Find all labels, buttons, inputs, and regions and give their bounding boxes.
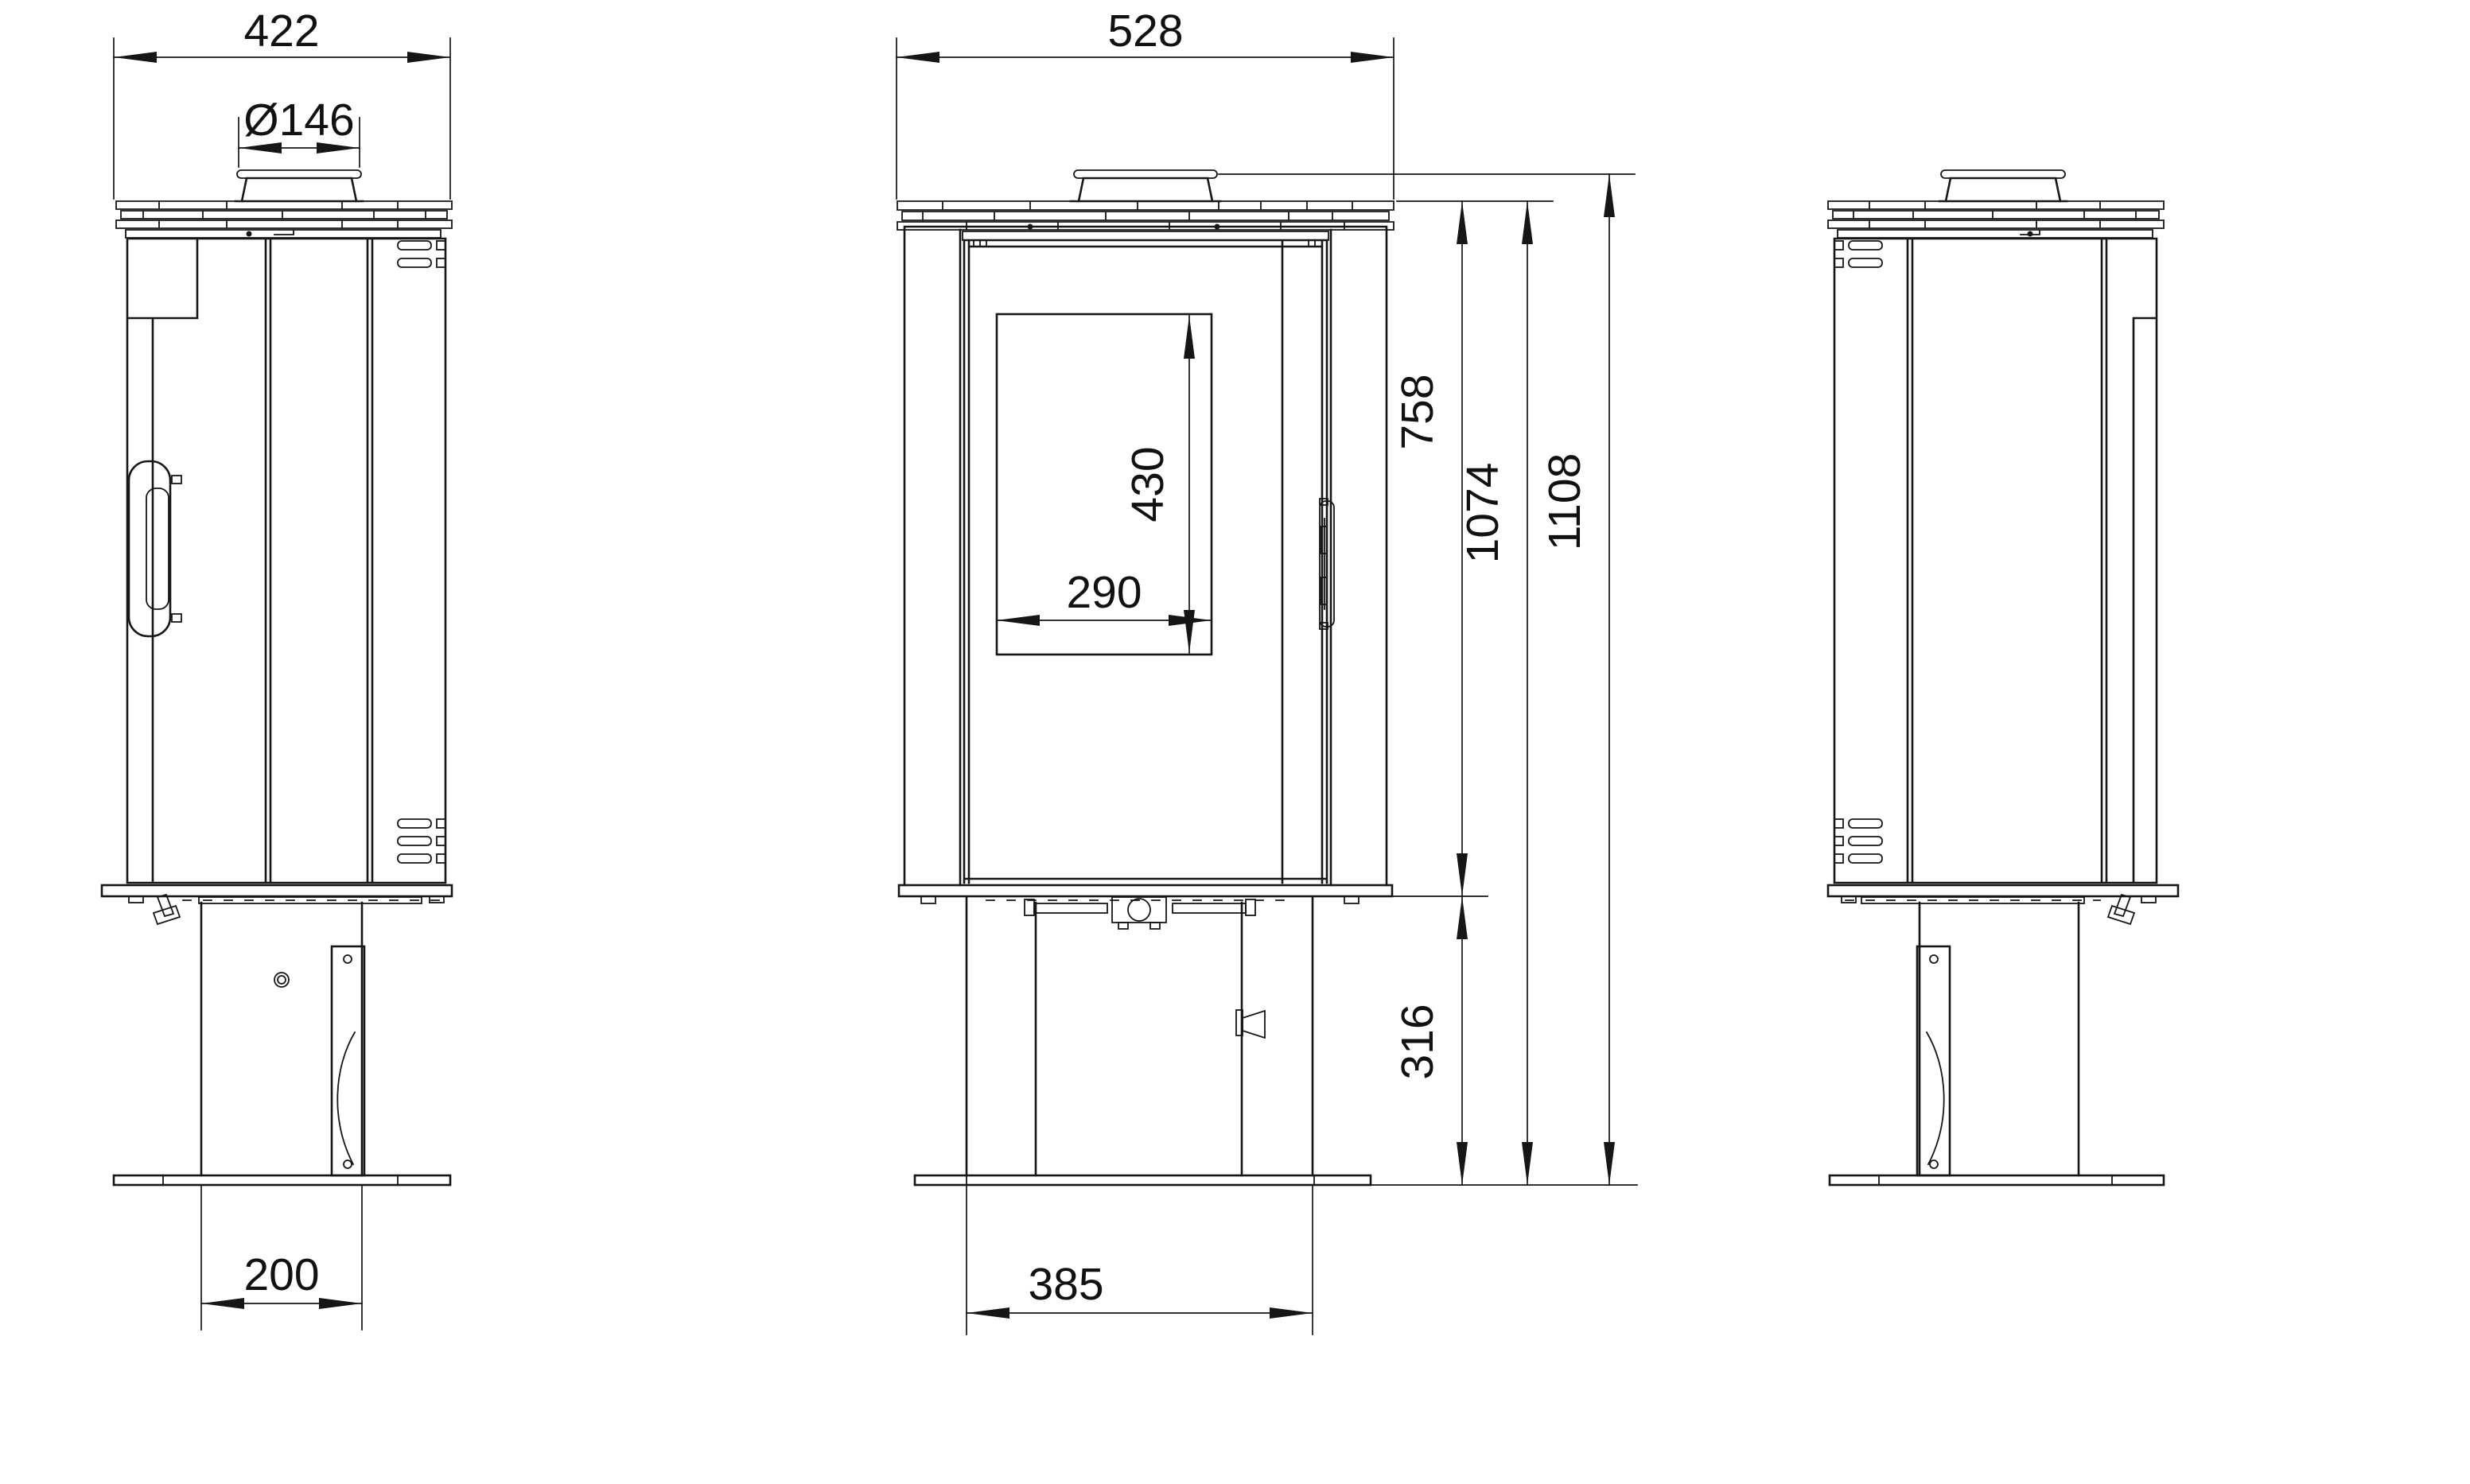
vent-slot [398, 819, 431, 828]
dim-label-floor-to-top: 1074 [1457, 463, 1508, 564]
fastener-dot [2028, 231, 2033, 237]
screw [1930, 1160, 1938, 1168]
vents-bottom-right-view [1834, 819, 1882, 863]
body-left [127, 239, 445, 883]
knob-cone [1243, 1011, 1265, 1038]
dim-pedestal-width-385: 385 [967, 1187, 1313, 1334]
vent-notch [437, 241, 445, 250]
vent-slot [1849, 837, 1882, 845]
dim-floor-to-top-1074: 1074 [1457, 201, 1527, 1185]
pedestal-left [201, 903, 362, 1175]
bottom-lip-front [899, 885, 1392, 896]
left-side-view: 422 Ø146 200 [102, 6, 452, 1330]
dim-label-pedestal-depth: 200 [243, 1249, 319, 1300]
dim-glass-width-290: 290 [997, 567, 1212, 620]
dim-label-overall-height: 1108 [1539, 453, 1590, 551]
vent-notch [1834, 837, 1843, 845]
dim-flue-146: Ø146 [239, 95, 360, 167]
cover-arc [1927, 1032, 1944, 1164]
top-plate-front [897, 201, 1394, 240]
vents-top-left-view [398, 241, 445, 267]
bottom-lip-right [1828, 885, 2178, 896]
ash-knob-left-view [154, 895, 180, 924]
dim-pedestal-depth-200: 200 [201, 1187, 362, 1330]
top-plate-left [116, 201, 452, 238]
knob-shaft [158, 895, 173, 916]
dim-label-floor-to-body: 316 [1392, 1004, 1443, 1079]
vent-notch [437, 837, 445, 845]
foot [1344, 896, 1359, 903]
vent-slot [398, 258, 431, 267]
handle-bolt [172, 614, 181, 622]
linkage-tab [1246, 899, 1255, 915]
flue-collar-front [1071, 170, 1220, 201]
vent-slot [1849, 258, 1882, 267]
pedestal-knob [1236, 1010, 1265, 1038]
flue-collar-body [235, 178, 363, 201]
damper-wheel [1128, 899, 1150, 921]
foot [921, 896, 935, 903]
vent-slot [1849, 819, 1882, 828]
flue-collar-cap [1941, 170, 2065, 178]
flue-collar-left [235, 170, 363, 201]
knob-shaft [2114, 895, 2130, 916]
dim-label-pedestal-width: 385 [1028, 1259, 1103, 1310]
pedestal-cover-panel [332, 946, 364, 1175]
front-view: 528 430 290 385 [897, 6, 1394, 1334]
vent-notch [1834, 258, 1843, 267]
dim-label-glass-height: 430 [1122, 446, 1173, 522]
base-plate-joints [163, 1175, 398, 1185]
dim-floor-to-body-316: 316 [1392, 896, 1462, 1185]
body-front [904, 227, 1387, 885]
body-right [1834, 239, 2157, 883]
dim-label-width: 528 [1107, 6, 1183, 56]
top-plate-right [1828, 201, 2164, 238]
dim-label-depth: 422 [243, 6, 319, 56]
door-handle [129, 461, 181, 636]
vent-slot [398, 854, 431, 863]
fastener-dot [247, 231, 252, 237]
screw [344, 1160, 352, 1168]
drawing-sheet: 422 Ø146 200 [0, 0, 2470, 1484]
base-plate-joints [967, 1175, 1314, 1185]
vent-notch [437, 258, 445, 267]
vent-slot [1849, 241, 1882, 250]
screw [1930, 955, 1938, 963]
vent-notch [437, 819, 445, 828]
linkage-bar [1034, 903, 1107, 913]
dim-label-glass-width: 290 [1066, 567, 1142, 618]
vent-notch [1834, 854, 1843, 863]
base-plate-joints [1879, 1175, 2112, 1185]
linkage-bar [1173, 903, 1246, 913]
cover-plate [332, 946, 364, 1175]
flue-collar-cap [237, 170, 361, 178]
pedestal-cover-panel [1917, 946, 1950, 1175]
vent-slot [398, 837, 431, 845]
pedestal-hole [274, 973, 289, 987]
vent-notch [1834, 241, 1843, 250]
handle-inner [146, 488, 169, 609]
vents-top-right-view [1834, 241, 1882, 267]
stove-dimension-drawing: 422 Ø146 200 [0, 0, 2470, 1484]
extension-lines [967, 1187, 1313, 1334]
dim-overall-height-1108: 1108 [1539, 174, 1609, 1185]
pedestal-hole-inner [278, 976, 286, 984]
cover-plate [1917, 946, 1950, 1175]
bolt [1150, 923, 1160, 929]
linkage-tab [1025, 899, 1034, 915]
pedestal-right [1920, 903, 2079, 1175]
damper-mechanism [1025, 897, 1255, 929]
screw [344, 955, 352, 963]
dim-label-flue: Ø146 [243, 95, 354, 146]
bolt [1118, 923, 1128, 929]
cover-arc [337, 1032, 355, 1164]
flue-collar-cap [1074, 170, 1217, 178]
base-plate-front [915, 1175, 1371, 1185]
vent-notch [1834, 819, 1843, 828]
bottom-lip-left [102, 885, 452, 896]
flue-collar-body [1939, 178, 2067, 201]
handle-bolt [172, 476, 181, 484]
dim-body-span-758: 758 [1392, 201, 1462, 896]
ash-knob-right-view [2108, 895, 2134, 924]
vent-slot [1849, 854, 1882, 863]
right-side-view [1828, 170, 2178, 1185]
vents-bottom-left-view [398, 819, 445, 863]
vent-slot [398, 241, 431, 250]
flue-collar-right [1939, 170, 2067, 201]
dim-label-body-span: 758 [1392, 374, 1443, 449]
handle-grip [129, 461, 170, 636]
base-plate-right [1830, 1175, 2164, 1185]
vent-notch [437, 854, 445, 863]
flue-collar-body [1071, 178, 1220, 201]
base-plate-left [114, 1175, 450, 1185]
